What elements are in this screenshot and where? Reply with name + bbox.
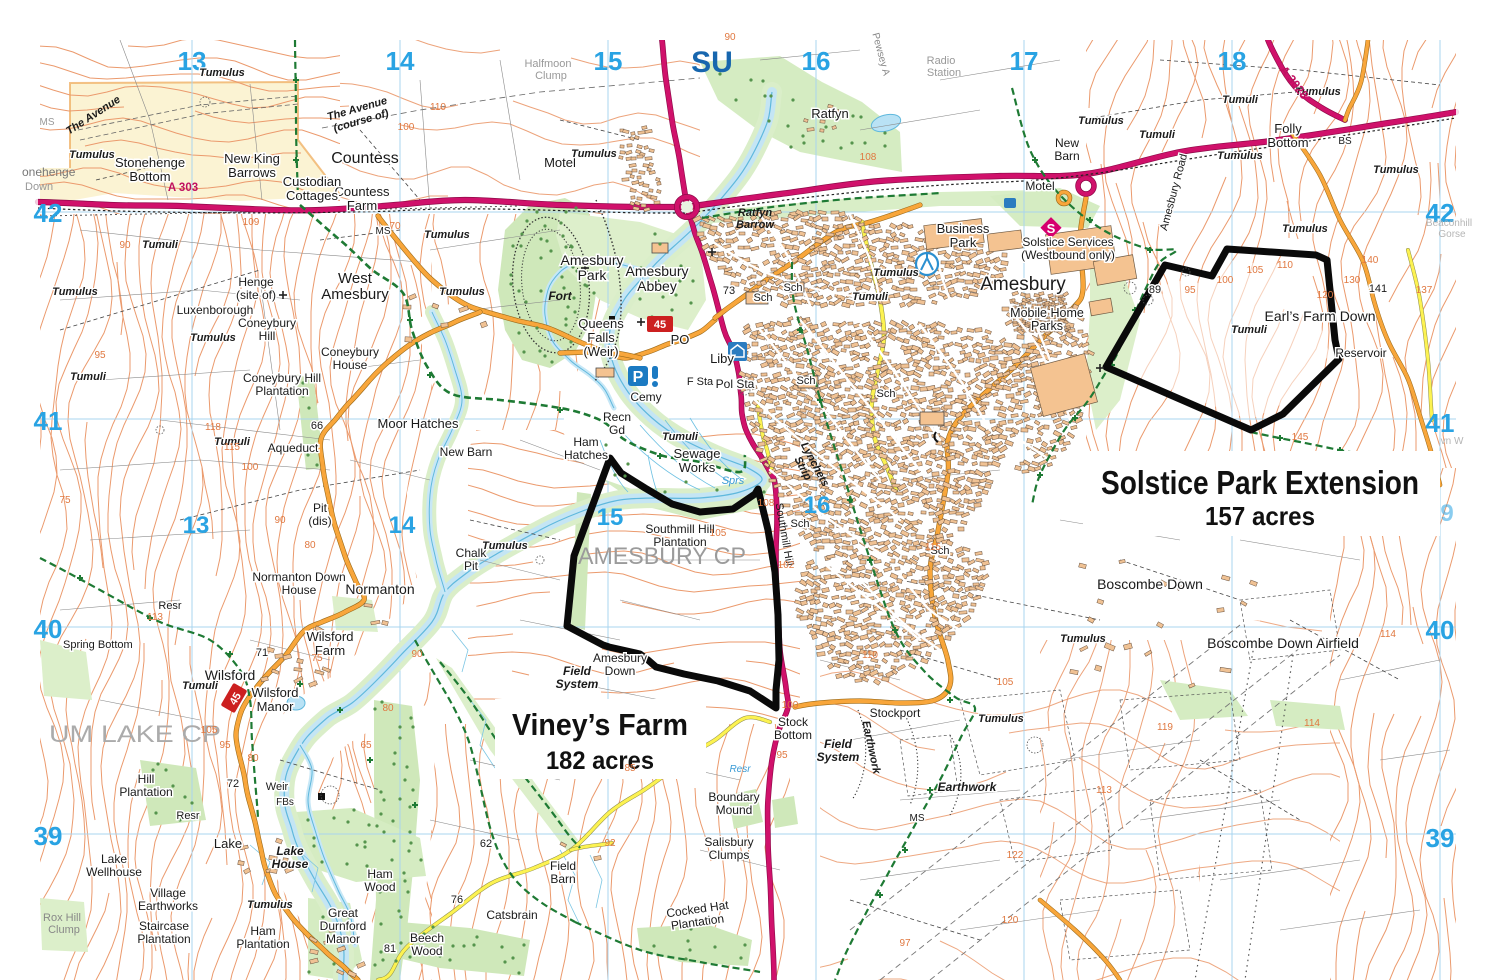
svg-text:95: 95: [94, 350, 106, 361]
svg-text:81: 81: [384, 943, 396, 955]
svg-text:Field: Field: [824, 737, 853, 751]
svg-text:Folly: Folly: [1274, 121, 1302, 136]
svg-text:109: 109: [243, 217, 260, 228]
svg-text:90: 90: [411, 649, 423, 660]
svg-text:100: 100: [242, 462, 259, 473]
svg-text:Coneybury Hill: Coneybury Hill: [243, 371, 321, 385]
svg-text:Sch: Sch: [791, 518, 810, 530]
svg-text:AMESBURY CP: AMESBURY CP: [578, 543, 746, 570]
svg-text:Spring Bottom: Spring Bottom: [63, 639, 133, 651]
svg-text:Southmill Hill: Southmill Hill: [645, 522, 714, 536]
svg-text:Cottages: Cottages: [286, 188, 339, 203]
svg-text:Stonehenge: Stonehenge: [115, 155, 185, 170]
svg-text:Tumuli: Tumuli: [662, 431, 699, 443]
svg-text:Pol Sta: Pol Sta: [716, 377, 755, 391]
svg-text:40: 40: [1426, 615, 1455, 645]
svg-text:Plantation: Plantation: [119, 785, 172, 799]
svg-text:House: House: [272, 857, 309, 871]
svg-text:Recn: Recn: [603, 410, 631, 424]
svg-text:Solstice Park Extension: Solstice Park Extension: [1101, 464, 1419, 501]
svg-text:114: 114: [1304, 718, 1320, 729]
svg-text:14: 14: [386, 46, 415, 76]
svg-text:Stock: Stock: [778, 715, 809, 729]
svg-text:Barrows: Barrows: [228, 165, 276, 180]
svg-text:Tumuli: Tumuli: [70, 371, 107, 383]
svg-text:105: 105: [1247, 265, 1264, 276]
svg-text:Barn: Barn: [1054, 149, 1079, 163]
svg-text:UM LAKE CP: UM LAKE CP: [49, 721, 221, 748]
svg-text:Pit: Pit: [313, 501, 328, 515]
svg-text:75: 75: [59, 495, 71, 506]
svg-text:Tumulus: Tumulus: [190, 332, 236, 344]
svg-text:Tumuli: Tumuli: [182, 680, 219, 692]
svg-text:Normanton Down: Normanton Down: [252, 570, 345, 584]
svg-text:Boscombe Down: Boscombe Down: [1097, 576, 1203, 592]
svg-text:Village: Village: [150, 886, 186, 900]
svg-text:108: 108: [860, 152, 877, 163]
svg-text:90: 90: [119, 240, 131, 251]
svg-text:92: 92: [604, 838, 616, 849]
svg-text:140: 140: [1362, 255, 1379, 266]
svg-text:onehenge: onehenge: [22, 165, 76, 179]
svg-text:41: 41: [1426, 408, 1455, 438]
svg-text:Falls: Falls: [587, 330, 615, 345]
svg-text:Clumps: Clumps: [709, 848, 750, 862]
svg-text:39: 39: [1426, 823, 1455, 853]
svg-text:14: 14: [389, 512, 416, 539]
svg-text:Mound: Mound: [716, 803, 753, 817]
svg-text:75: 75: [311, 653, 323, 664]
svg-text:66: 66: [311, 420, 323, 432]
svg-text:Radio: Radio: [927, 55, 956, 67]
svg-text:Ham: Ham: [250, 924, 275, 938]
svg-text:Durnford: Durnford: [320, 919, 367, 933]
svg-text:Stockport: Stockport: [870, 706, 921, 720]
svg-text:FBs: FBs: [276, 797, 294, 808]
svg-text:Bottom: Bottom: [774, 728, 812, 742]
svg-text:Tumulus: Tumulus: [978, 713, 1024, 725]
svg-text:Resr: Resr: [729, 764, 751, 775]
svg-text:15: 15: [594, 46, 623, 76]
svg-text:17: 17: [1010, 46, 1039, 76]
svg-text:Custodian: Custodian: [283, 174, 342, 189]
svg-text:West: West: [338, 270, 373, 287]
svg-text:42: 42: [34, 198, 63, 228]
svg-text:House: House: [282, 583, 317, 597]
svg-text:Sch: Sch: [784, 282, 803, 294]
svg-text:Weir: Weir: [266, 781, 289, 793]
svg-text:Moor Hatches: Moor Hatches: [378, 416, 459, 431]
svg-text:Ham: Ham: [573, 435, 598, 449]
svg-text:120: 120: [1317, 290, 1334, 301]
svg-text:Farm: Farm: [347, 198, 377, 213]
svg-text:39: 39: [34, 821, 63, 851]
svg-text:Tumuli: Tumuli: [1231, 324, 1268, 336]
svg-text:Staircase: Staircase: [139, 919, 189, 933]
svg-text:72: 72: [227, 778, 239, 790]
svg-text:(dis): (dis): [308, 514, 331, 528]
svg-text:Plantation: Plantation: [255, 384, 308, 398]
svg-text:Station: Station: [927, 67, 961, 79]
svg-text:90: 90: [274, 515, 286, 526]
svg-text:15: 15: [597, 504, 624, 531]
svg-text:Henge: Henge: [238, 275, 274, 289]
svg-text:73: 73: [723, 285, 735, 297]
svg-text:108: 108: [758, 498, 775, 509]
svg-text:65: 65: [360, 740, 372, 751]
svg-text:95: 95: [776, 750, 788, 761]
svg-text:Tumuli: Tumuli: [852, 291, 889, 303]
svg-text:157 acres: 157 acres: [1205, 501, 1315, 531]
svg-text:141: 141: [1369, 283, 1387, 295]
svg-text:90: 90: [724, 32, 736, 43]
svg-text:(Westbound only): (Westbound only): [1021, 248, 1115, 262]
svg-text:76: 76: [451, 894, 463, 906]
svg-text:118: 118: [205, 422, 221, 433]
svg-text:Gorse: Gorse: [1438, 229, 1466, 240]
svg-text:Ratfyn: Ratfyn: [738, 207, 773, 219]
svg-text:105: 105: [201, 725, 218, 736]
svg-text:119: 119: [1157, 722, 1173, 733]
svg-text:145: 145: [1292, 432, 1309, 443]
svg-text:New: New: [1055, 136, 1079, 150]
svg-text:Pit: Pit: [464, 559, 479, 573]
svg-text:Luxenborough: Luxenborough: [177, 303, 254, 317]
svg-text:85: 85: [624, 763, 636, 774]
svg-text:113: 113: [147, 612, 163, 623]
svg-text:Tumuli: Tumuli: [1222, 94, 1259, 106]
svg-text:9: 9: [1440, 500, 1453, 527]
svg-text:105: 105: [997, 677, 1014, 688]
svg-text:Wilsford: Wilsford: [307, 629, 354, 644]
svg-text:PO: PO: [671, 332, 690, 347]
svg-text:Earthworks: Earthworks: [138, 899, 198, 913]
svg-text:Parks: Parks: [1031, 319, 1063, 333]
svg-text:71: 71: [256, 647, 268, 659]
svg-text:102: 102: [778, 560, 795, 571]
svg-text:Hatches: Hatches: [564, 448, 608, 462]
svg-text:70: 70: [389, 221, 401, 232]
svg-text:Hill: Hill: [259, 329, 276, 343]
svg-text:S: S: [1047, 221, 1056, 236]
svg-text:Amesbury: Amesbury: [593, 651, 647, 665]
svg-text:Coneybury: Coneybury: [321, 345, 379, 359]
svg-text:House: House: [333, 358, 368, 372]
svg-text:Normanton: Normanton: [345, 581, 414, 597]
svg-text:Tumulus: Tumulus: [1217, 150, 1263, 162]
svg-text:Tumuli: Tumuli: [142, 239, 179, 251]
svg-text:Beech: Beech: [410, 931, 444, 945]
svg-text:F Sta: F Sta: [687, 376, 714, 388]
svg-text:16: 16: [804, 492, 831, 519]
svg-text:P: P: [633, 369, 644, 386]
svg-text:Coneybury: Coneybury: [238, 316, 296, 330]
svg-text:Hill: Hill: [138, 772, 155, 786]
svg-text:Tumuli: Tumuli: [1139, 129, 1176, 141]
svg-text:Salisbury: Salisbury: [704, 835, 753, 849]
svg-text:Bottom: Bottom: [129, 169, 170, 184]
svg-text:Ratfyn: Ratfyn: [811, 106, 849, 121]
svg-text:Motel: Motel: [1025, 179, 1054, 193]
svg-text:Tumulus: Tumulus: [1078, 115, 1124, 127]
svg-text:Catsbrain: Catsbrain: [486, 908, 537, 922]
svg-text:System: System: [556, 677, 599, 691]
svg-text:Aqueduct: Aqueduct: [268, 441, 319, 455]
svg-text:Lake: Lake: [276, 844, 304, 858]
svg-text:Down: Down: [605, 664, 636, 678]
svg-text:Clump: Clump: [535, 70, 567, 82]
svg-text:110: 110: [430, 102, 446, 113]
svg-text:16: 16: [802, 46, 831, 76]
svg-text:62: 62: [480, 838, 492, 850]
svg-text:Manor: Manor: [257, 699, 295, 714]
svg-text:Countess: Countess: [331, 150, 399, 167]
svg-text:Earthwork: Earthwork: [938, 780, 998, 794]
svg-text:100: 100: [398, 122, 415, 133]
svg-text:Tumulus: Tumulus: [52, 286, 98, 298]
svg-text:Plantation: Plantation: [236, 937, 289, 951]
svg-text:New Barn: New Barn: [440, 445, 493, 459]
svg-text:Rox Hill: Rox Hill: [43, 912, 81, 924]
svg-text:120: 120: [1002, 915, 1019, 926]
svg-text:Tumulus: Tumulus: [1282, 223, 1328, 235]
svg-text:Abbey: Abbey: [637, 278, 677, 294]
svg-text:18: 18: [1218, 46, 1247, 76]
svg-text:40: 40: [34, 614, 63, 644]
svg-text:113: 113: [1096, 785, 1112, 796]
svg-text:80: 80: [304, 540, 316, 551]
svg-text:Lake: Lake: [101, 852, 127, 866]
svg-text:Business: Business: [937, 221, 990, 236]
svg-text:Halfmoon: Halfmoon: [524, 58, 571, 70]
svg-text:Amesbury: Amesbury: [560, 252, 623, 268]
svg-text:Solstice Services: Solstice Services: [1022, 235, 1113, 249]
svg-text:Tumulus: Tumulus: [873, 267, 919, 279]
svg-text:System: System: [817, 750, 860, 764]
svg-text:Fort: Fort: [548, 289, 572, 303]
svg-text:Viney’s Farm: Viney’s Farm: [512, 707, 688, 742]
svg-text:182 acres: 182 acres: [546, 747, 654, 775]
svg-text:Lake: Lake: [214, 836, 242, 851]
svg-text:New King: New King: [224, 151, 280, 166]
svg-text:Tumulus: Tumulus: [247, 899, 293, 911]
svg-text:Manor: Manor: [326, 932, 360, 946]
svg-text:110: 110: [862, 650, 878, 661]
svg-text:Beaconhill: Beaconhill: [1426, 218, 1472, 229]
svg-text:Tumulus: Tumulus: [482, 540, 528, 552]
svg-text:Down: Down: [25, 181, 53, 193]
svg-text:Barn: Barn: [550, 872, 575, 886]
svg-text:114: 114: [1380, 629, 1396, 640]
svg-text:Wilsford: Wilsford: [252, 685, 299, 700]
svg-text:Wood: Wood: [411, 944, 442, 958]
svg-text:Boscombe Down Airfield: Boscombe Down Airfield: [1207, 635, 1359, 651]
svg-text:89: 89: [1149, 284, 1161, 296]
svg-text:Gd: Gd: [609, 423, 625, 437]
svg-text:Park: Park: [578, 267, 608, 283]
svg-text:Tumulus: Tumulus: [1060, 633, 1106, 645]
svg-text:100: 100: [1217, 275, 1234, 286]
svg-text:41: 41: [34, 406, 63, 436]
svg-text:Plantation: Plantation: [137, 932, 190, 946]
svg-text:Boundary: Boundary: [708, 790, 759, 804]
svg-text:Wellhouse: Wellhouse: [86, 865, 142, 879]
svg-text:Tumulus: Tumulus: [439, 286, 485, 298]
svg-text:SU: SU: [691, 46, 733, 79]
svg-text:Tumulus: Tumulus: [571, 148, 617, 160]
svg-text:Sewage: Sewage: [674, 446, 721, 461]
svg-text:Mobile Home: Mobile Home: [1010, 306, 1084, 320]
svg-text:Amesbury: Amesbury: [980, 274, 1066, 295]
svg-text:Tumulus: Tumulus: [1373, 164, 1419, 176]
svg-text:Sch: Sch: [754, 292, 773, 304]
svg-text:100: 100: [782, 700, 799, 711]
svg-text:95: 95: [1184, 285, 1196, 296]
svg-text:Resr: Resr: [176, 810, 200, 822]
svg-text:105: 105: [710, 528, 727, 539]
svg-text:Field: Field: [563, 664, 592, 678]
svg-text:80: 80: [382, 703, 394, 714]
svg-text:Clump: Clump: [48, 924, 80, 936]
svg-text:Sch: Sch: [797, 375, 816, 387]
svg-text:80: 80: [247, 753, 259, 764]
svg-text:MS: MS: [910, 813, 925, 824]
svg-text:Countess: Countess: [335, 184, 390, 199]
svg-text:Tumulus: Tumulus: [69, 149, 115, 161]
svg-text:Amesbury: Amesbury: [625, 263, 688, 279]
svg-text:Wood: Wood: [364, 880, 395, 894]
svg-text:45: 45: [654, 319, 666, 331]
svg-text:Tumulus: Tumulus: [199, 67, 245, 79]
svg-text:Field: Field: [550, 859, 576, 873]
svg-text:122: 122: [1007, 850, 1024, 861]
svg-text:Bottom: Bottom: [1267, 135, 1308, 150]
svg-text:137: 137: [1416, 285, 1433, 296]
svg-text:(site of): (site of): [236, 288, 276, 302]
svg-text:Ham: Ham: [367, 867, 392, 881]
svg-text:Barrow: Barrow: [736, 219, 775, 231]
svg-text:Sprs: Sprs: [722, 475, 745, 487]
svg-text:97: 97: [899, 938, 911, 949]
svg-text:MS: MS: [40, 117, 55, 128]
svg-text:Cemy: Cemy: [630, 390, 661, 404]
svg-text:110: 110: [1277, 260, 1293, 271]
svg-text:Amesbury: Amesbury: [321, 286, 389, 303]
svg-text:Great: Great: [328, 906, 359, 920]
svg-text:Liby: Liby: [710, 351, 734, 366]
svg-text:Resr: Resr: [158, 600, 182, 612]
svg-text:Park: Park: [950, 235, 977, 250]
svg-text:13: 13: [183, 512, 210, 539]
svg-text:Tumulus: Tumulus: [424, 229, 470, 241]
svg-text:115: 115: [925, 542, 941, 553]
svg-text:Reservoir: Reservoir: [1335, 346, 1386, 360]
svg-text:Earl’s Farm Down: Earl’s Farm Down: [1265, 308, 1376, 324]
svg-text:Works: Works: [679, 460, 716, 475]
svg-text:Sch: Sch: [877, 388, 896, 400]
svg-text:95: 95: [219, 740, 231, 751]
svg-text:(Weir): (Weir): [583, 344, 618, 359]
svg-text:BS: BS: [1338, 136, 1352, 147]
svg-text:Queens: Queens: [578, 316, 624, 331]
svg-text:130: 130: [1344, 275, 1361, 286]
svg-text:A 303: A 303: [168, 182, 198, 194]
svg-text:vn W: vn W: [1441, 436, 1464, 447]
svg-text:115: 115: [224, 442, 240, 453]
